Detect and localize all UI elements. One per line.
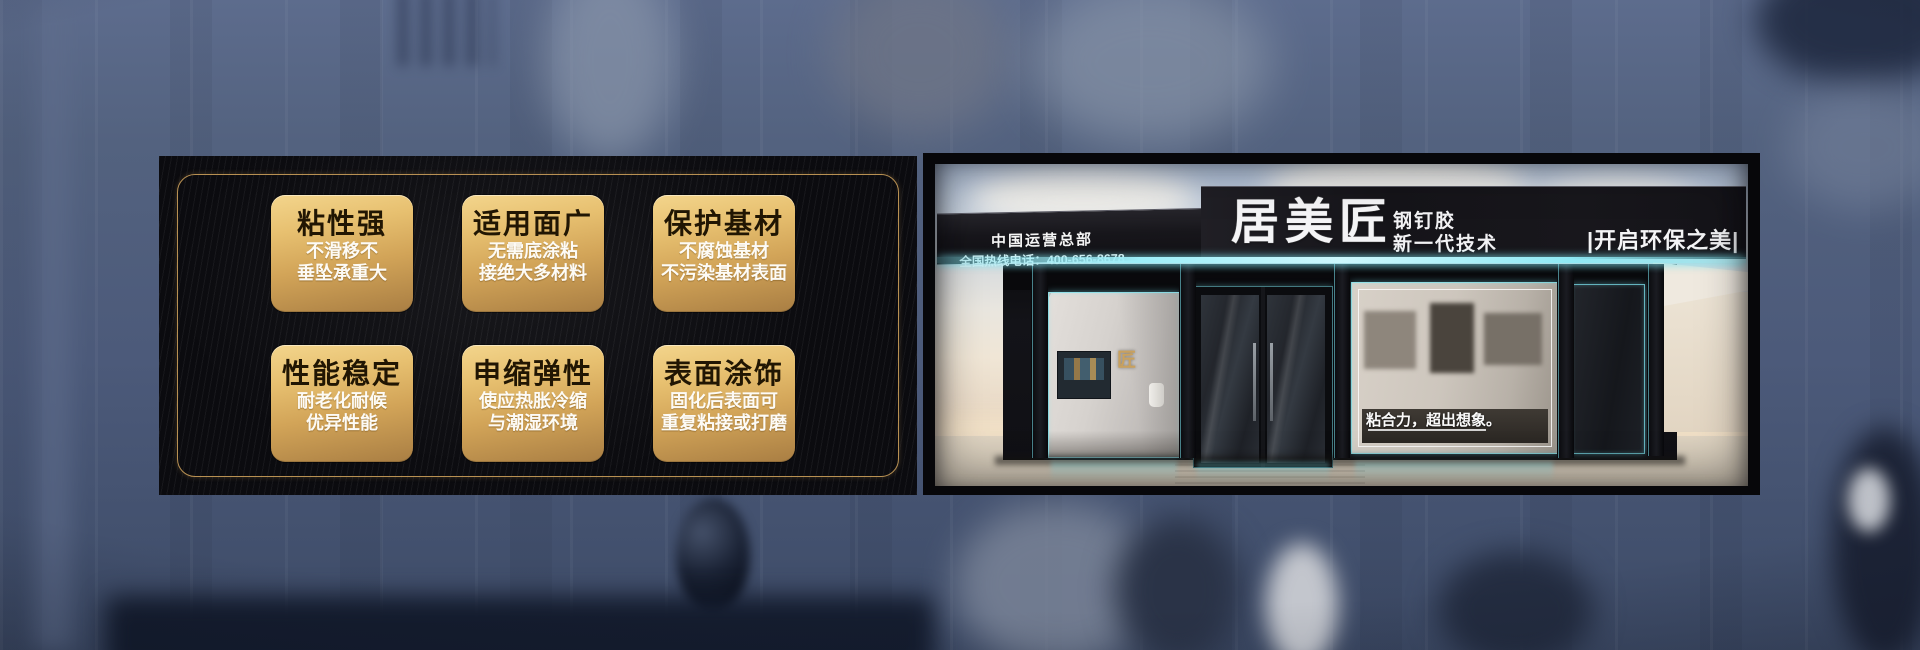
background-blur-dark	[1755, 0, 1920, 85]
feature-card-desc-line: 无需底涂粘	[462, 240, 604, 262]
neon-reflection	[1051, 462, 1177, 482]
feature-card-desc-line: 重复粘接或打磨	[653, 412, 795, 434]
interior-furniture	[1484, 313, 1542, 365]
storefront-scene: 匠 粘合力，超出想象。	[935, 164, 1748, 486]
feature-card-desc-line: 固化后表面可	[653, 390, 795, 412]
feature-card-desc-line: 接绝大多材料	[462, 262, 604, 284]
feature-card-desc-line: 耐老化耐候	[271, 390, 413, 412]
feature-card: 适用面广 无需底涂粘 接绝大多材料	[462, 195, 604, 312]
store-pillar	[1647, 264, 1664, 456]
feature-card-desc-line: 使应热胀冷缩	[462, 390, 604, 412]
door-handle	[1270, 343, 1273, 421]
door-glass	[1267, 295, 1325, 463]
feature-card: 保护基材 不腐蚀基材 不污染基材表面	[653, 195, 795, 312]
feature-card-desc-line: 优异性能	[271, 412, 413, 434]
background-blur-grey	[830, 0, 1010, 135]
background-blur-light	[1030, 0, 1270, 145]
store-pillar	[1031, 264, 1048, 458]
neon-strip	[937, 257, 1746, 263]
feature-card: 性能稳定 耐老化耐候 优异性能	[271, 345, 413, 462]
feature-card-grid: 粘性强 不滑移不 垂坠承重大 适用面广 无需底涂粘 接绝大多材料 保护基材 不腐…	[271, 195, 795, 462]
background-blur-column	[34, 0, 72, 650]
banner-stage: 粘性强 不滑移不 垂坠承重大 适用面广 无需底涂粘 接绝大多材料 保护基材 不腐…	[0, 0, 1920, 650]
background-blur-dark	[1438, 552, 1593, 650]
interior-furniture	[1364, 311, 1416, 369]
storefront-photo: 匠 粘合力，超出想象。	[923, 153, 1760, 495]
feature-card-title: 保护基材	[653, 208, 795, 240]
jiang-logo: 匠	[1117, 345, 1136, 372]
window-bay-partial	[1571, 284, 1645, 454]
feature-card-title: 表面涂饰	[653, 358, 795, 390]
feature-card-desc-line: 不滑移不	[271, 240, 413, 262]
product-tech: 新一代技术	[1393, 229, 1498, 256]
tv-screen	[1057, 351, 1111, 399]
feature-card-title: 申缩弹性	[462, 358, 604, 390]
neon-reflection	[1355, 462, 1553, 482]
neon-reflection	[1197, 462, 1329, 482]
feature-card-desc-line: 不腐蚀基材	[653, 240, 795, 262]
feature-card: 申缩弹性 使应热胀冷缩 与潮湿环境	[462, 345, 604, 462]
display-pot	[1149, 383, 1164, 407]
feature-card-desc-line: 与潮湿环境	[462, 412, 604, 434]
window-bay-left: 匠	[1048, 292, 1180, 458]
background-vase-blob	[1266, 543, 1338, 650]
background-plant-blob	[1832, 428, 1920, 650]
eco-slogan: |开启环保之美|	[1587, 223, 1739, 255]
window-slogan: 粘合力，超出想象。	[1366, 409, 1501, 430]
entrance-door	[1193, 286, 1333, 468]
brand-title: 居美匠	[1231, 197, 1393, 249]
store-pillar	[1557, 264, 1574, 458]
feature-card: 表面涂饰 固化后表面可 重复粘接或打磨	[653, 345, 795, 462]
interior-furniture	[1430, 303, 1474, 373]
window-bay-right: 粘合力，超出想象。	[1351, 282, 1559, 454]
door-stile	[1261, 287, 1265, 467]
feature-card-desc-line: 垂坠承重大	[271, 262, 413, 284]
background-blur-light	[545, 0, 675, 160]
background-blur-slats	[398, 0, 494, 66]
feature-card-title: 适用面广	[462, 208, 604, 240]
door-handle	[1253, 343, 1256, 421]
feature-card-title: 粘性强	[271, 208, 413, 240]
background-figurine-blob	[1848, 468, 1890, 532]
store-pillar	[1333, 264, 1350, 458]
door-glass	[1201, 295, 1259, 463]
store-pillar	[1179, 264, 1196, 458]
feature-card: 粘性强 不滑移不 垂坠承重大	[271, 195, 413, 312]
right-side-structure	[1653, 262, 1748, 458]
feature-card-desc-line: 不污染基材表面	[653, 262, 795, 284]
background-chair-shadow	[1115, 518, 1240, 650]
features-panel: 粘性强 不滑移不 垂坠承重大 适用面广 无需底涂粘 接绝大多材料 保护基材 不腐…	[159, 156, 917, 495]
feature-card-title: 性能稳定	[271, 358, 413, 390]
right-sky	[1653, 292, 1748, 432]
background-table-shadow	[105, 596, 935, 650]
window-floor-shadow	[1049, 431, 1179, 457]
background-blur-light	[1785, 85, 1920, 210]
